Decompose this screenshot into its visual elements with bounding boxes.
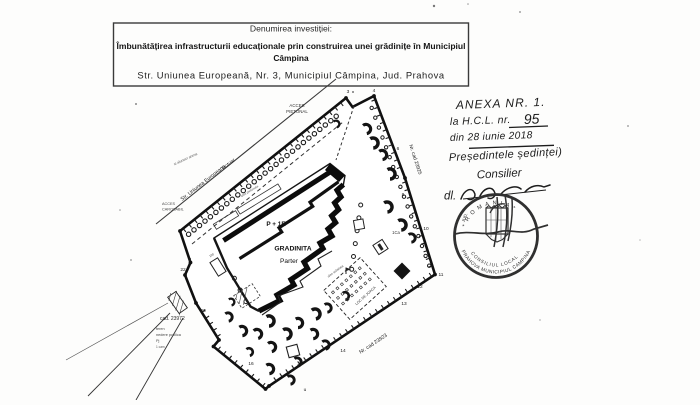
svg-text:Îmbunătățirea infrastructurii: Îmbunătățirea infrastructurii educaționa… [115, 40, 465, 51]
svg-text:Parter: Parter [280, 258, 299, 265]
svg-text:ACCES: ACCES [289, 103, 304, 108]
svg-text:2: 2 [189, 257, 192, 263]
svg-text:teren: teren [156, 327, 165, 331]
svg-text:ACCES: ACCES [162, 202, 176, 206]
svg-text:Str. Uniunea Europeană, Nr. 3,: Str. Uniunea Europeană, Nr. 3, Municipiu… [137, 70, 444, 81]
svg-text:6: 6 [397, 146, 400, 152]
svg-text:13: 13 [401, 301, 407, 307]
svg-text:10: 10 [423, 226, 429, 232]
svg-text:GRADINITA: GRADINITA [274, 246, 311, 253]
svg-text:CAROSABIL: CAROSABIL [162, 208, 184, 212]
svg-text:Pj: Pj [156, 339, 160, 343]
svg-text:11: 11 [439, 272, 444, 278]
svg-text:nedere publica: nedere publica [156, 333, 182, 337]
svg-text:Câmpina: Câmpina [273, 53, 309, 63]
svg-text:22: 22 [180, 267, 186, 273]
svg-text:la H.C.L. nr.: la H.C.L. nr. [450, 114, 511, 128]
svg-text:8: 8 [402, 192, 405, 198]
svg-text:14: 14 [340, 348, 346, 354]
svg-text:dl.: dl. [444, 191, 456, 203]
svg-text:1Ca: 1Ca [392, 230, 400, 235]
svg-text:1 cam: 1 cam [156, 345, 165, 349]
svg-text:Consilier: Consilier [477, 167, 523, 181]
svg-text:Denumirea investiției:: Denumirea investiției: [250, 24, 332, 34]
svg-text:16: 16 [248, 361, 254, 367]
svg-text:3: 3 [347, 89, 350, 95]
svg-text:u: u [304, 388, 307, 393]
svg-text:23: 23 [200, 308, 206, 314]
svg-text:PIETONAL: PIETONAL [286, 109, 308, 114]
svg-text:95: 95 [524, 110, 540, 127]
svg-text:P + 1E: P + 1E [266, 221, 286, 228]
svg-text:cad. 23972: cad. 23972 [160, 316, 185, 322]
svg-text:4: 4 [373, 88, 376, 94]
svg-text:12: 12 [417, 284, 423, 290]
